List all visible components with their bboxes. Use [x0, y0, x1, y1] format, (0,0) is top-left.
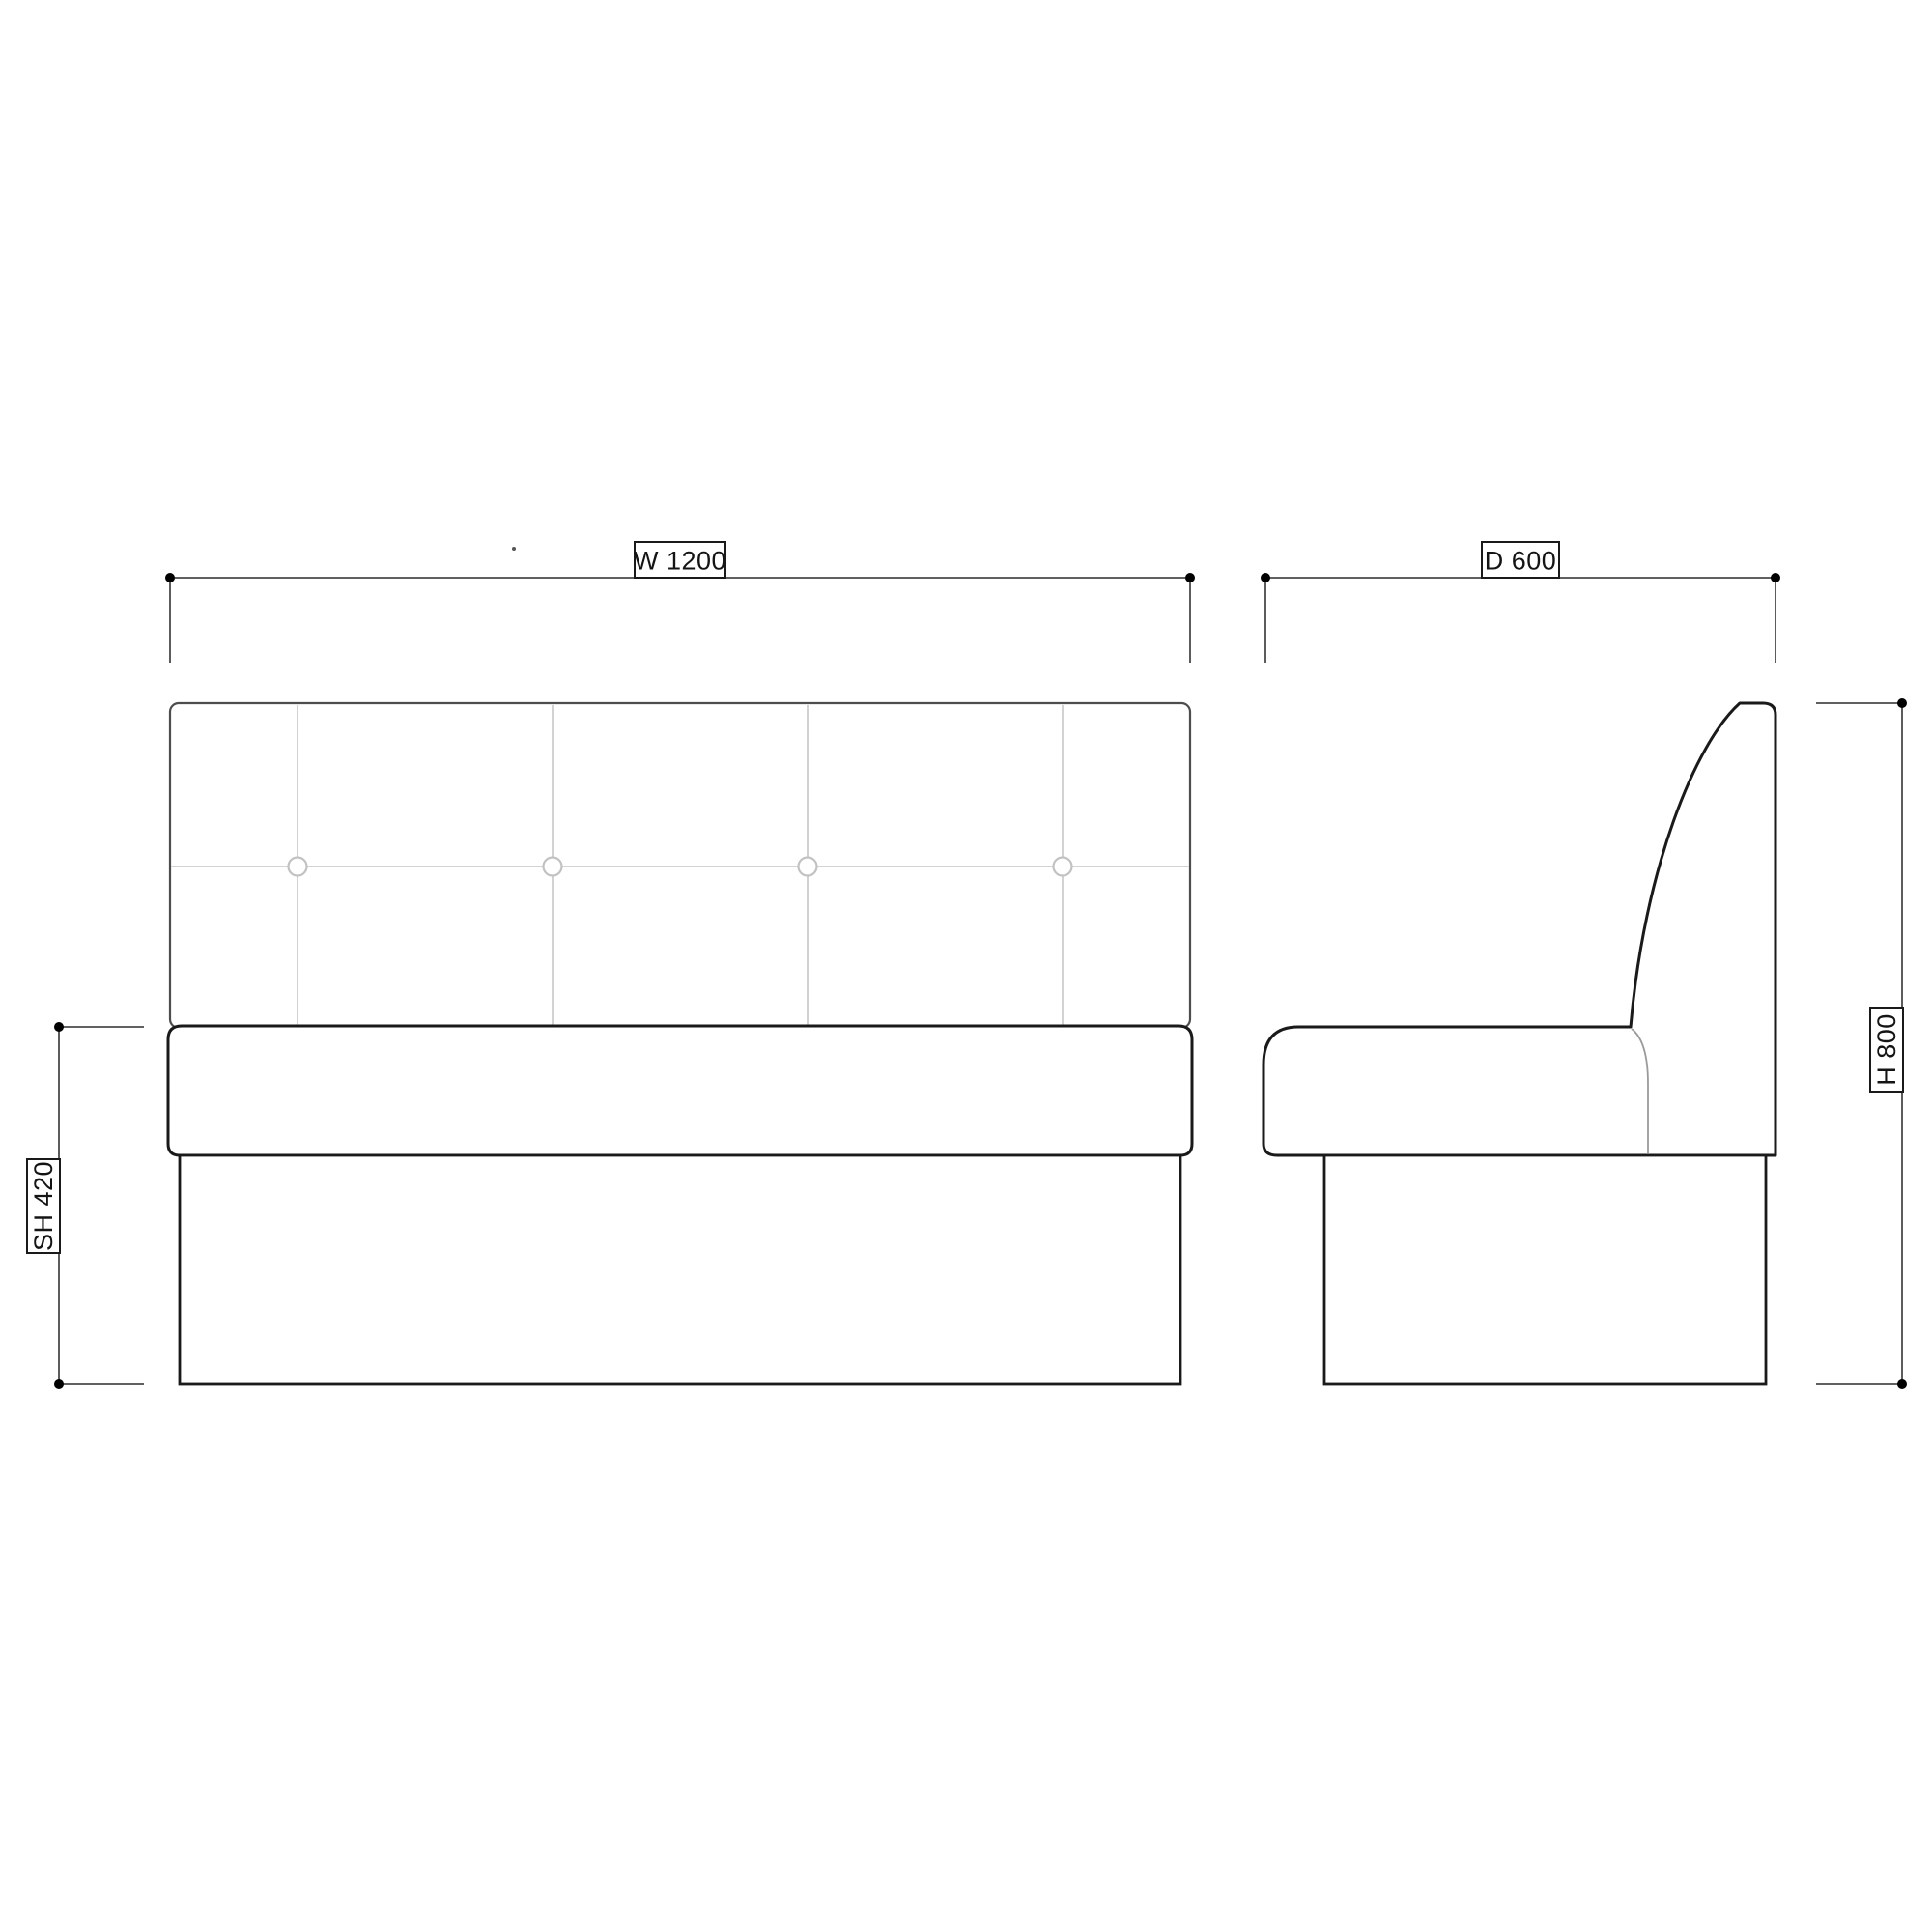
dimension-endpoint-dot: [1897, 698, 1907, 708]
dimension-endpoint-dot: [1771, 573, 1780, 582]
technical-drawing-canvas: W 1200 D 600 SH 420: [0, 0, 1932, 1932]
dimension-endpoint-dot: [1261, 573, 1270, 582]
dimension-endpoint-dot: [54, 1379, 64, 1389]
front-seat-cushion: [168, 1026, 1192, 1155]
front-plinth-base: [180, 1155, 1180, 1384]
height-dimension-label: H 800: [1872, 1013, 1901, 1086]
dimension-endpoint-dot: [1185, 573, 1195, 582]
dimension-endpoint-dot: [1897, 1379, 1907, 1389]
dimension-endpoint-dot: [165, 573, 175, 582]
side-plinth-base: [1324, 1155, 1766, 1384]
tufting-button: [289, 858, 307, 876]
front-backrest-panel: [170, 703, 1190, 1028]
dimension-endpoint-dot: [54, 1022, 64, 1032]
front-elevation-view: [168, 703, 1192, 1384]
width-dimension-label: W 1200: [634, 547, 726, 576]
tufting-button: [799, 858, 817, 876]
depth-dimension-label: D 600: [1485, 547, 1557, 576]
tufting-button: [1054, 858, 1072, 876]
tufting-button: [544, 858, 562, 876]
stray-mark: [512, 547, 516, 551]
seat-height-dimension-label: SH 420: [29, 1161, 58, 1251]
